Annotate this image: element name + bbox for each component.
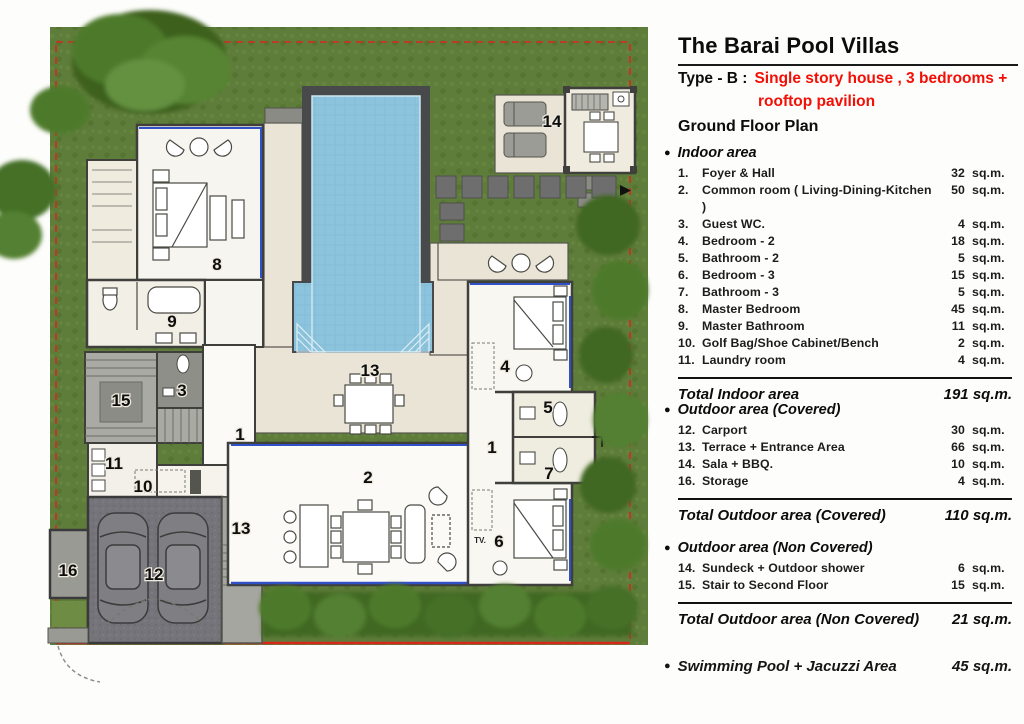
room-label: 8 — [212, 255, 221, 274]
room-label: 4 — [500, 357, 510, 376]
row-value: 50 — [939, 182, 965, 216]
sala-sink — [613, 92, 629, 106]
room-label: 9 — [167, 312, 176, 331]
row-label: Bathroom - 2 — [702, 250, 939, 267]
shoe-cabinet — [190, 470, 201, 494]
row-value: 4 — [939, 473, 965, 490]
pool-total-value: 45 sq.m. — [952, 658, 1012, 675]
row-num: 14. — [678, 456, 702, 473]
area-row: 14.Sala + BBQ.10sq.m. — [678, 456, 1012, 473]
type-description-2: rooftop pavilion — [758, 93, 875, 111]
row-label: Common room ( Living-Dining-Kitchen ) — [702, 182, 939, 216]
row-value: 6 — [939, 560, 965, 577]
divider — [678, 377, 1012, 379]
row-label: Golf Bag/Shoe Cabinet/Bench — [702, 335, 939, 352]
row-label: Foyer & Hall — [702, 165, 939, 182]
row-num: 7. — [678, 284, 702, 301]
row-value: 11 — [939, 318, 965, 335]
row-label: Master Bathroom — [702, 318, 939, 335]
type-prefix: Type - B : — [678, 70, 747, 88]
row-label: Bathroom - 3 — [702, 284, 939, 301]
row-unit: sq.m. — [965, 250, 1012, 267]
section-outdoor-covered: ● Outdoor area (Covered) 12.Carport30sq.… — [664, 402, 1012, 524]
page: 8 9 15 3 1 11 10 16 12 13 13 2 1 4 5 7 6… — [0, 0, 1024, 724]
pool-water — [312, 96, 420, 352]
row-unit: sq.m. — [965, 284, 1012, 301]
area-row: 14.Sundeck + Outdoor shower6sq.m. — [678, 560, 1012, 577]
row-label: Terrace + Entrance Area — [702, 439, 939, 456]
area-row: 7.Bathroom - 35sq.m. — [678, 284, 1012, 301]
row-label: Bedroom - 3 — [702, 267, 939, 284]
total-label: Total Outdoor area (Covered) — [678, 507, 945, 524]
bullet-icon: ● — [664, 661, 671, 672]
row-num: 16. — [678, 473, 702, 490]
divider — [678, 602, 1012, 604]
row-value: 32 — [939, 165, 965, 182]
row-value: 18 — [939, 233, 965, 250]
room-label: 11 — [105, 454, 123, 473]
area-row: 6.Bedroom - 315sq.m. — [678, 267, 1012, 284]
bbq-grill — [572, 94, 608, 110]
room-label: 14 — [543, 112, 562, 131]
row-unit: sq.m. — [965, 473, 1012, 490]
side-grass-patch — [52, 601, 86, 627]
page-title: The Barai Pool Villas — [678, 33, 1020, 59]
total-value: 191 sq.m. — [944, 386, 1012, 403]
row-num: 9. — [678, 318, 702, 335]
area-row: 3.Guest WC.4sq.m. — [678, 216, 1012, 233]
room-label: 13 — [361, 361, 380, 380]
row-num: 11. — [678, 352, 702, 369]
area-row: 4.Bedroom - 218sq.m. — [678, 233, 1012, 250]
laundry-appliances — [92, 449, 105, 491]
pool-total-label: Swimming Pool + Jacuzzi Area — [678, 658, 945, 675]
row-num: 5. — [678, 250, 702, 267]
gate-swing — [58, 646, 100, 682]
info-panel: The Barai Pool Villas Type - B : Single … — [660, 0, 1024, 724]
area-row: 5.Bathroom - 25sq.m. — [678, 250, 1012, 267]
section-indoor: ● Indoor area 1.Foyer & Hall32sq.m. 2.Co… — [664, 145, 1012, 403]
row-label: Storage — [702, 473, 939, 490]
bed-bedroom2 — [514, 286, 567, 360]
stool-bed4 — [516, 365, 532, 381]
row-value: 4 — [939, 352, 965, 369]
room-label: 13 — [232, 519, 251, 538]
room-label: 7 — [544, 464, 553, 483]
room-label: 5 — [543, 398, 552, 417]
total-indoor: Total Indoor area 191 sq.m. — [678, 386, 1012, 403]
row-num: 12. — [678, 422, 702, 439]
row-label: Stair to Second Floor — [702, 577, 939, 594]
row-num: 3. — [678, 216, 702, 233]
row-num: 6. — [678, 267, 702, 284]
kitchen-island — [284, 505, 328, 567]
total-label: Total Outdoor area (Non Covered) — [678, 611, 952, 628]
section-outdoor-noncovered: ● Outdoor area (Non Covered) 14.Sundeck … — [664, 540, 1012, 628]
total-value: 21 sq.m. — [952, 611, 1012, 628]
row-num: 13. — [678, 439, 702, 456]
row-value: 15 — [939, 267, 965, 284]
row-value: 30 — [939, 422, 965, 439]
room-label: 15 — [112, 391, 131, 410]
area-row: 9.Master Bathroom11sq.m. — [678, 318, 1012, 335]
row-num: 4. — [678, 233, 702, 250]
area-row: 2.Common room ( Living-Dining-Kitchen )5… — [678, 182, 1012, 216]
plan-name: Ground Floor Plan — [678, 118, 818, 136]
row-label: Master Bedroom — [702, 301, 939, 318]
title-underline — [678, 64, 1018, 66]
tv-label: TV. — [474, 536, 486, 545]
row-label: Carport — [702, 422, 939, 439]
row-value: 5 — [939, 250, 965, 267]
row-value: 4 — [939, 216, 965, 233]
row-unit: sq.m. — [965, 439, 1012, 456]
type-description: Single story house , 3 bedrooms + — [754, 70, 1007, 88]
car-icon — [158, 513, 208, 623]
area-row: 12.Carport30sq.m. — [678, 422, 1012, 439]
room-label: 16 — [59, 561, 78, 580]
area-row: 10.Golf Bag/Shoe Cabinet/Bench2sq.m. — [678, 335, 1012, 352]
row-num: 2. — [678, 182, 702, 216]
row-value: 66 — [939, 439, 965, 456]
car-icon — [98, 513, 148, 623]
row-unit: sq.m. — [965, 335, 1012, 352]
total-value: 110 sq.m. — [945, 507, 1012, 524]
room-label: 10 — [134, 477, 153, 496]
stairs-lower — [157, 408, 203, 443]
section-title: Outdoor area (Non Covered) — [678, 540, 873, 556]
total-outdoor-covered: Total Outdoor area (Covered) 110 sq.m. — [678, 507, 1012, 524]
floor-plan: 8 9 15 3 1 11 10 16 12 13 13 2 1 4 5 7 6… — [0, 0, 660, 724]
total-outdoor-noncovered: Total Outdoor area (Non Covered) 21 sq.m… — [678, 611, 1012, 628]
area-row: 8.Master Bedroom45sq.m. — [678, 301, 1012, 318]
room-label: 2 — [363, 468, 372, 487]
area-row: 15.Stair to Second Floor15sq.m. — [678, 577, 1012, 594]
row-unit: sq.m. — [965, 422, 1012, 439]
row-value: 2 — [939, 335, 965, 352]
pool-total: ● Swimming Pool + Jacuzzi Area 45 sq.m. — [664, 658, 1012, 675]
tree-left — [0, 160, 56, 259]
room-label: 1 — [487, 438, 496, 457]
bullet-icon: ● — [664, 148, 671, 159]
hedge-south — [259, 584, 638, 638]
row-unit: sq.m. — [965, 352, 1012, 369]
row-unit: sq.m. — [965, 577, 1012, 594]
bullet-icon: ● — [664, 405, 671, 416]
row-num: 10. — [678, 335, 702, 352]
room-label: 1 — [235, 425, 244, 444]
stool-bed6 — [493, 561, 507, 575]
room-label: 3 — [177, 381, 186, 400]
room-label: 6 — [494, 532, 503, 551]
section-title: Indoor area — [678, 145, 757, 161]
row-unit: sq.m. — [965, 301, 1012, 318]
side-pad — [48, 628, 88, 643]
row-label: Bedroom - 2 — [702, 233, 939, 250]
row-label: Sundeck + Outdoor shower — [702, 560, 939, 577]
row-num: 8. — [678, 301, 702, 318]
row-unit: sq.m. — [965, 233, 1012, 250]
row-unit: sq.m. — [965, 165, 1012, 182]
row-label: Sala + BBQ. — [702, 456, 939, 473]
section-heading: ● Indoor area — [664, 145, 1012, 161]
room-label: 12 — [145, 565, 164, 584]
total-label: Total Indoor area — [678, 386, 944, 403]
row-value: 5 — [939, 284, 965, 301]
area-row: 13.Terrace + Entrance Area66sq.m. — [678, 439, 1012, 456]
row-value: 10 — [939, 456, 965, 473]
area-row: 11.Laundry room4sq.m. — [678, 352, 1012, 369]
area-row: 16.Storage4sq.m. — [678, 473, 1012, 490]
divider — [678, 498, 1012, 500]
row-value: 15 — [939, 577, 965, 594]
area-row: 1.Foyer & Hall32sq.m. — [678, 165, 1012, 182]
row-label: Guest WC. — [702, 216, 939, 233]
row-unit: sq.m. — [965, 318, 1012, 335]
row-unit: sq.m. — [965, 456, 1012, 473]
row-unit: sq.m. — [965, 182, 1012, 216]
section-heading: ● Outdoor area (Non Covered) — [664, 540, 1012, 556]
bullet-icon: ● — [664, 543, 671, 554]
row-unit: sq.m. — [965, 216, 1012, 233]
row-label: Laundry room — [702, 352, 939, 369]
row-unit: sq.m. — [965, 267, 1012, 284]
master-closet-hall — [205, 280, 263, 347]
row-num: 1. — [678, 165, 702, 182]
row-num: 14. — [678, 560, 702, 577]
bed-bedroom3 — [514, 489, 567, 570]
row-value: 45 — [939, 301, 965, 318]
section-heading: ● Outdoor area (Covered) — [664, 402, 1012, 418]
deck-pad — [265, 108, 305, 123]
row-num: 15. — [678, 577, 702, 594]
section-title: Outdoor area (Covered) — [678, 402, 841, 418]
row-unit: sq.m. — [965, 560, 1012, 577]
type-line: Type - B : Single story house , 3 bedroo… — [678, 70, 1022, 88]
